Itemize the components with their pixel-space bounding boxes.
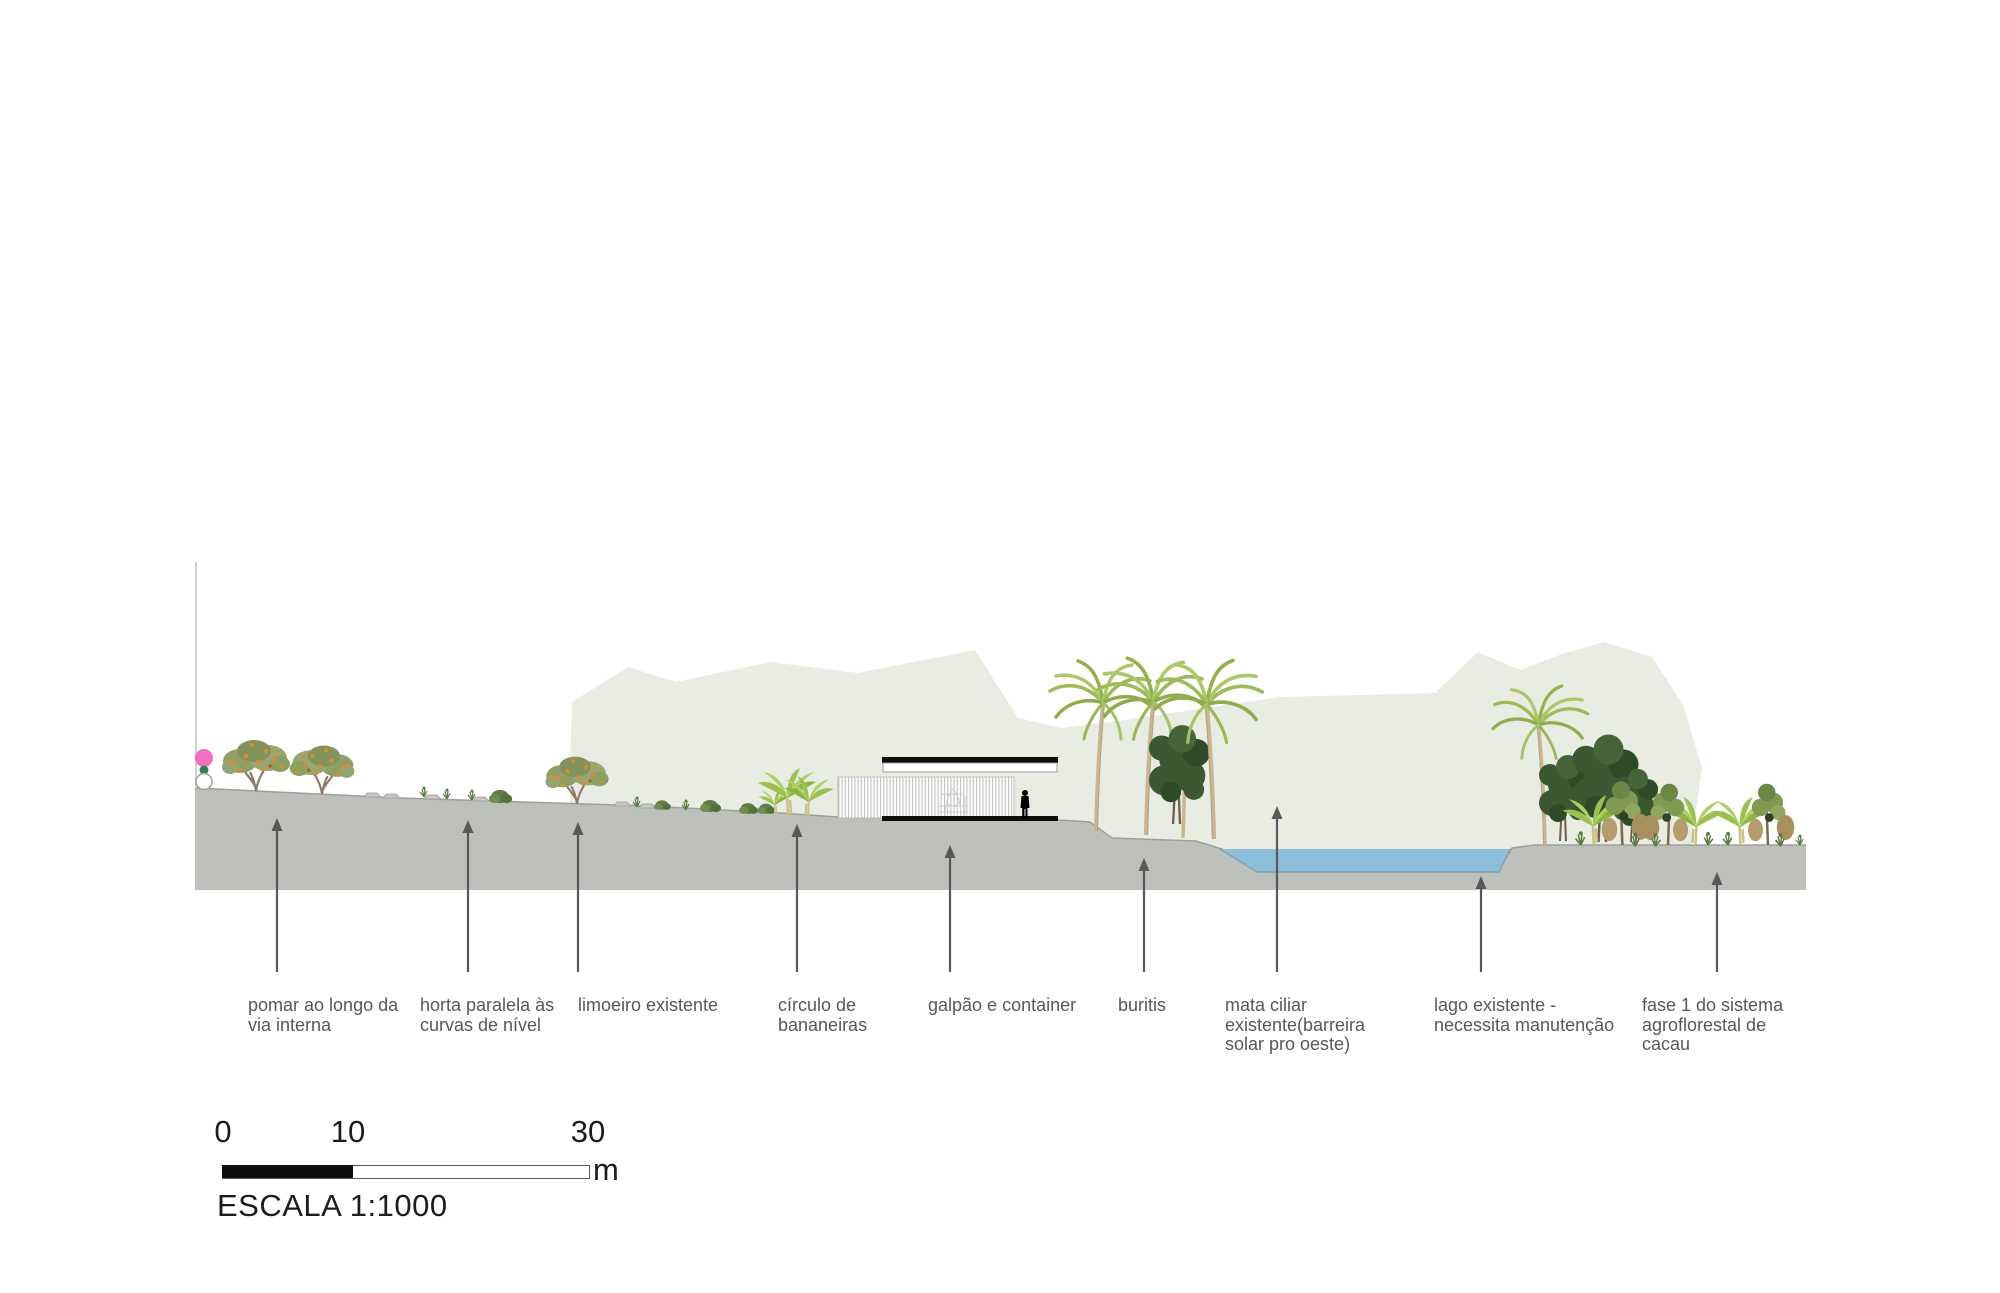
scale-caption: ESCALA 1:1000	[217, 1189, 448, 1223]
shed-roof	[882, 757, 1058, 763]
shed-floor-slab	[882, 816, 1058, 821]
container-wall	[838, 777, 1014, 818]
scale-bar-black-segment	[222, 1165, 353, 1178]
orchard-trees	[222, 740, 354, 794]
section-illustration	[0, 0, 2000, 1293]
scale-tick-30: 30	[568, 1115, 608, 1149]
scale-tick-10: 10	[330, 1115, 366, 1149]
scale-unit: m	[593, 1153, 619, 1187]
scale-bar-graphic	[222, 1165, 590, 1179]
scale-tick-0: 0	[210, 1115, 236, 1149]
lake	[1220, 849, 1510, 872]
shed-roof-fascia	[883, 763, 1057, 772]
survey-marker	[195, 749, 213, 790]
section-drawing-canvas: pomar ao longo da via internahorta paral…	[0, 0, 2000, 1293]
